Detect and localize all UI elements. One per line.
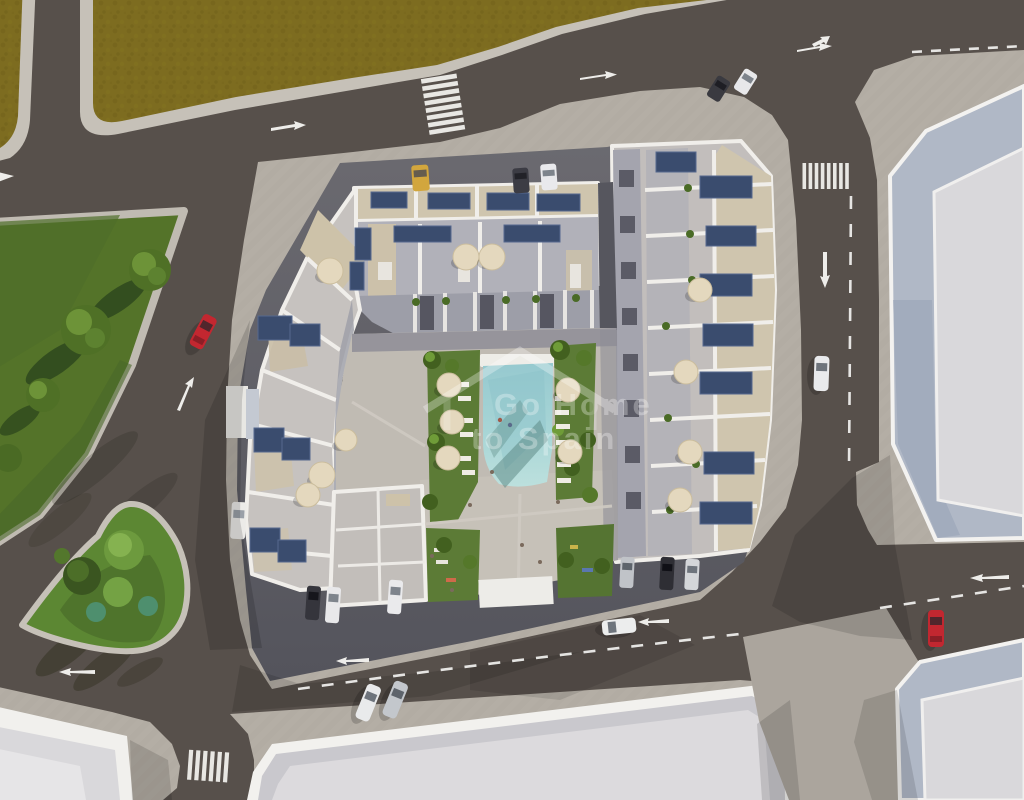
svg-text:Go Home: Go Home xyxy=(494,387,653,422)
svg-text:to Spain: to Spain xyxy=(471,421,617,456)
